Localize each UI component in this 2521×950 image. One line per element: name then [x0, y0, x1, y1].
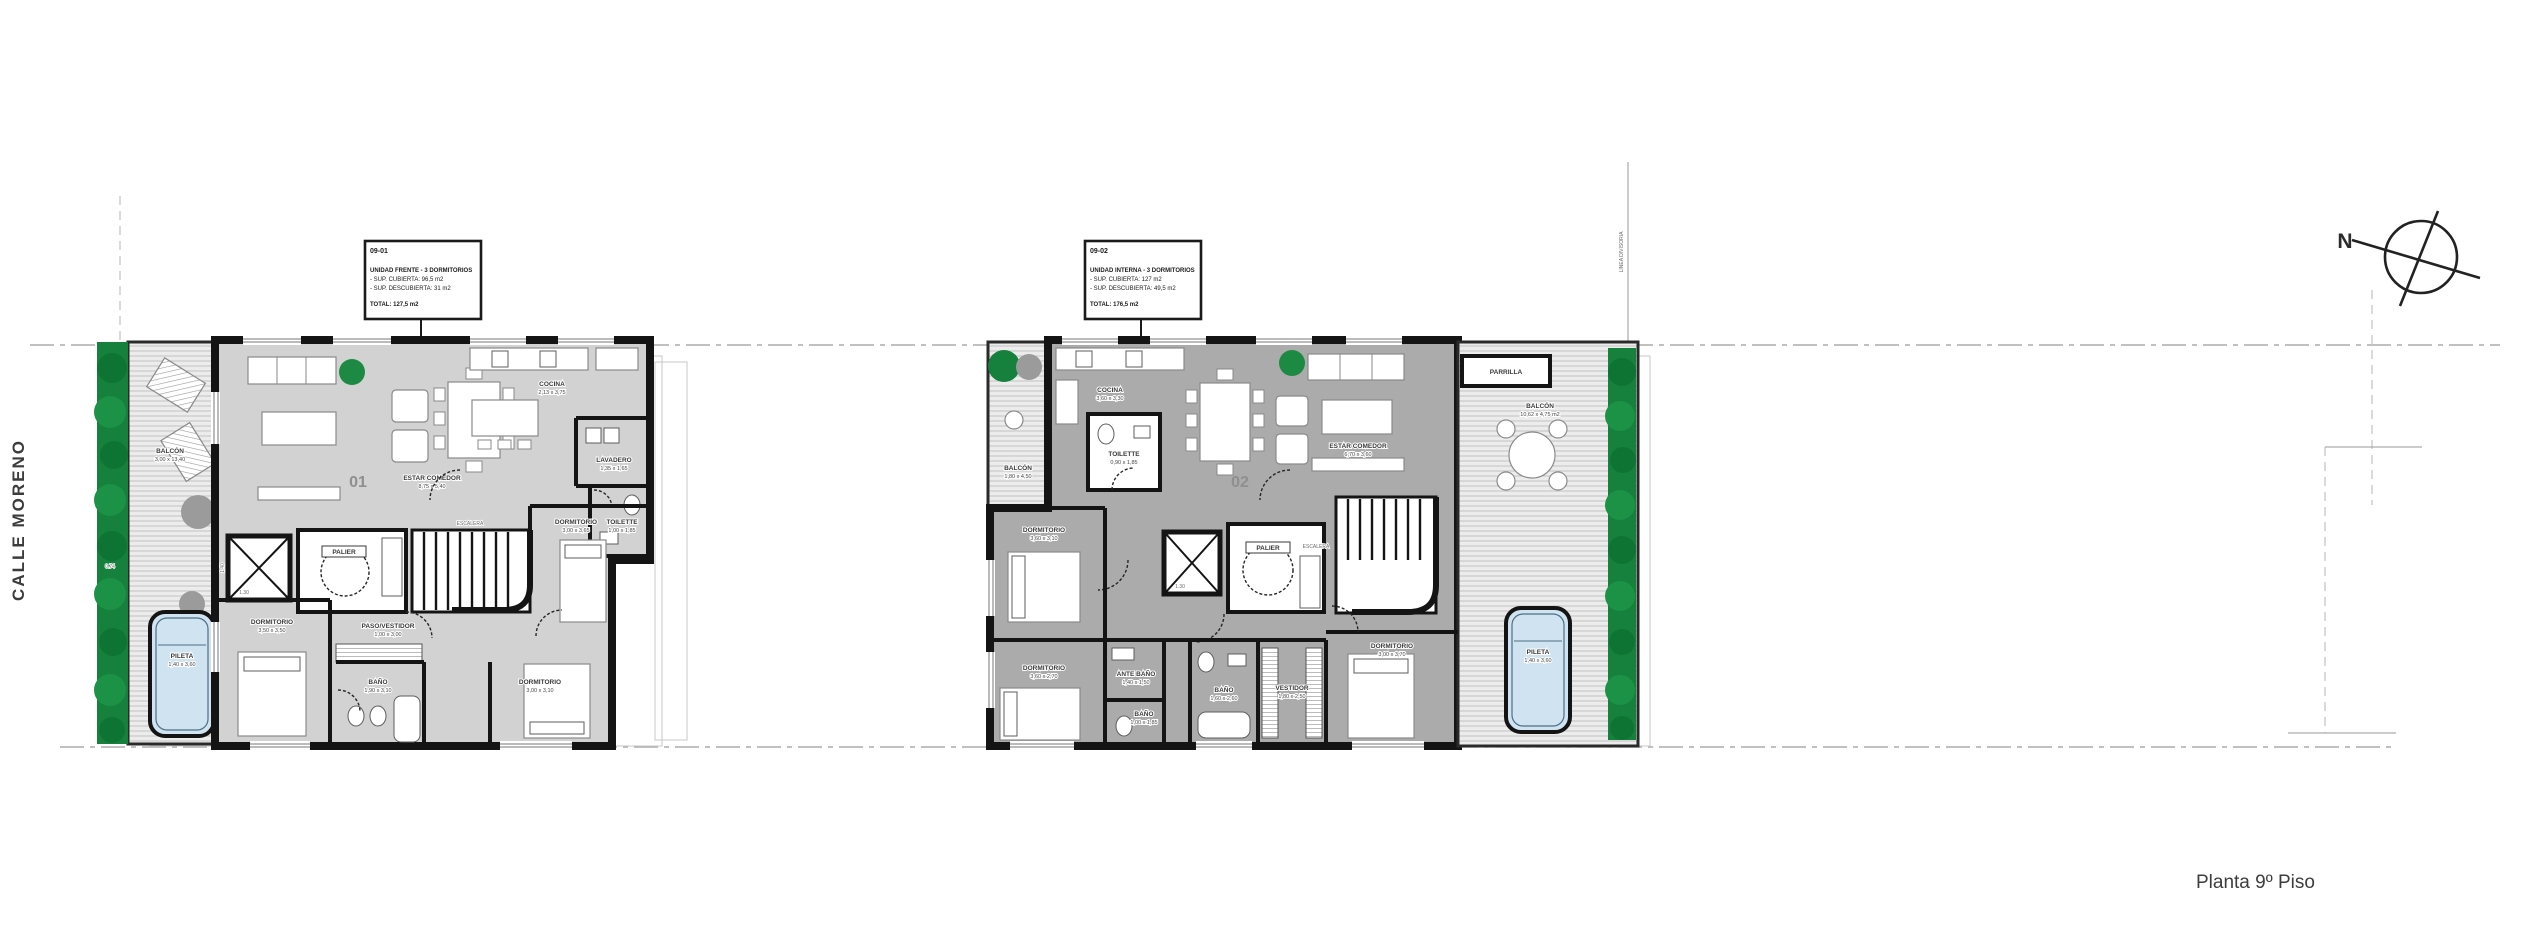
- unit-2-toilette-label: TOILETTE: [1108, 451, 1140, 458]
- chair: [1497, 472, 1515, 490]
- chair: [1497, 420, 1515, 438]
- vanity-icon: [1112, 648, 1134, 660]
- unit-1-cocina-dims: 2,13 x 3,75: [538, 390, 565, 396]
- unit-2-bano-dims: 1,60 x 2,60: [1210, 696, 1237, 702]
- toilet-icon: [1098, 424, 1114, 444]
- unit-1-estar-label: ESTAR COMEDOR: [403, 475, 461, 482]
- service-shaft: [1300, 556, 1320, 608]
- toilet-icon: [1198, 652, 1214, 672]
- unit-2-pileta-label: PILETA: [1527, 649, 1550, 656]
- cooktop-icon: [1126, 351, 1142, 367]
- kitchen-counter-side: [1056, 380, 1078, 424]
- unit-1-planter-strip: [94, 342, 128, 744]
- toilet-icon: [1116, 716, 1132, 736]
- fridge: [596, 348, 638, 370]
- unit-2-vestidor-dims: 1,80 x 2,50: [1278, 694, 1305, 700]
- unit-2-dorm2-dims: 3,60 x 2,70: [1030, 674, 1057, 680]
- unit-2-estar-label: ESTAR COMEDOR: [1329, 443, 1387, 450]
- bathtub-icon: [394, 696, 420, 742]
- armchair-2: [392, 430, 428, 462]
- unit-2-uncovered: - SUP. DESCUBIERTA: 49,5 m2: [1090, 286, 1176, 292]
- unit-2-balcon-l-label: BALCÓN: [1004, 463, 1032, 472]
- unit-1-lavadero-dims: 1,35 x 1,65: [600, 466, 627, 472]
- unit-2-balcon-l-dims: 1,80 x 4,50: [1004, 474, 1031, 480]
- north-compass: N: [2337, 211, 2480, 306]
- unit-2-dorm2-label: DORMITORIO: [1023, 665, 1065, 672]
- tree-icon: [988, 350, 1020, 382]
- bidet-icon: [370, 706, 386, 726]
- dryer-icon: [604, 428, 619, 443]
- kitchen-island: [472, 400, 538, 436]
- unit-2-balcon-r-label: BALCÓN: [1526, 401, 1554, 410]
- unit-2-bano-label: BAÑO: [1214, 685, 1233, 694]
- tv-sideboard: [1312, 458, 1404, 471]
- unit-1-paso-label: PASO/VESTIDOR: [362, 623, 415, 630]
- chair: [1549, 420, 1567, 438]
- unit-2-toilette-dims: 0,90 x 1,85: [1110, 460, 1137, 466]
- unit-1-pool: PILETA 1,40 x 3,60: [150, 612, 214, 736]
- unit-1-paso-dims: 1,00 x 3,00: [374, 632, 401, 638]
- unit-1-ghost-side: [655, 362, 687, 740]
- unit-02-plan: BALCÓN 1,80 x 4,50 COCINA 3,60 x 3,30: [986, 336, 1650, 750]
- unit-1-dorm1-label: DORMITORIO: [251, 619, 293, 626]
- unit-2-escalera-label: ESCALERA: [1303, 544, 1330, 550]
- unit-1-dorm2-label: DORMITORIO: [519, 679, 561, 686]
- unit-1-cocina-label: COCINA: [539, 381, 565, 388]
- pillow: [1354, 659, 1408, 673]
- island-stools: [478, 440, 531, 449]
- unit-1-code: 09-01: [370, 248, 388, 255]
- armchair-1: [392, 390, 428, 422]
- unit-1-dorm2-dims: 3,00 x 3,10: [526, 688, 553, 694]
- wardrobe: [1262, 648, 1278, 738]
- plant-icon: [1279, 350, 1305, 376]
- toilet-icon: [348, 706, 364, 726]
- sofa: [1308, 354, 1404, 380]
- chair: [1549, 472, 1567, 490]
- unit-2-total: TOTAL: 176,5 m2: [1090, 302, 1139, 308]
- unit-1-lavadero-label: LAVADERO: [596, 457, 632, 464]
- unit-1-escalera-label: ESCALERA: [457, 521, 484, 527]
- bathtub-icon: [1198, 712, 1250, 738]
- pillow: [244, 657, 300, 671]
- coffee-table: [1322, 400, 1392, 434]
- unit-1-balcon-dims: 3,00 x 13,40: [155, 457, 185, 463]
- pillow: [1004, 692, 1017, 736]
- coffee-table: [262, 412, 336, 445]
- stairs: ESCALERA: [412, 521, 530, 612]
- unit-1-pileta-dims: 1,40 x 3,60: [168, 662, 195, 668]
- unit-1-total: TOTAL: 127,5 m2: [370, 302, 419, 308]
- unit-2-antebano-dims: 1,40 x 1,50: [1122, 680, 1149, 686]
- compass-needle-icon: [2352, 240, 2480, 278]
- unit-1-left-dim: 0.74: [105, 564, 115, 570]
- plant-icon: [339, 359, 365, 385]
- sink-icon: [1076, 351, 1092, 367]
- unit-2-elev-depth: 1.30: [1175, 584, 1185, 590]
- round-table: [1509, 432, 1555, 478]
- unit-1-pileta-label: PILETA: [171, 653, 194, 660]
- unit-1-bano-label: BAÑO: [368, 677, 387, 686]
- washbasin-icon: [1134, 426, 1150, 438]
- unit-1-palier-label: PALIER: [332, 549, 356, 556]
- cooktop-icon: [540, 351, 556, 367]
- unit-2-cocina-label: COCINA: [1097, 387, 1123, 394]
- street-label: CALLE MORENO: [9, 439, 28, 601]
- unit-2-number: 02: [1231, 474, 1249, 491]
- unit-1-terrace-planter-pot-1: [181, 495, 215, 529]
- unit-2-parrilla-label: PARRILLA: [1490, 369, 1523, 376]
- unit-1-covered: - SUP. CUBIERTA: 96,5 m2: [370, 277, 444, 283]
- unit-1-number: 01: [349, 474, 367, 491]
- unit-2-covered: - SUP. CUBIERTA: 127 m2: [1090, 277, 1162, 283]
- sink-icon: [492, 351, 508, 367]
- pillow: [530, 722, 584, 734]
- unit-2-terrace-right: PARRILLA BALCÓN 10,62 x 4,75 m2 PILETA 1…: [1458, 342, 1638, 746]
- unit-1-dorm1-dims: 3,50 x 3,50: [258, 628, 285, 634]
- planter-pot: [1016, 354, 1042, 380]
- pillow: [565, 545, 601, 558]
- unit-2-palier-label: PALIER: [1256, 545, 1280, 552]
- side-table: [1005, 411, 1023, 429]
- armchair-2: [1276, 434, 1308, 464]
- unit-1-type: UNIDAD FRENTE - 3 DORMITORIOS: [370, 268, 472, 274]
- lot-divider-label: LINEA DIVISORIA: [1619, 231, 1625, 273]
- unit-2-bano-chico-dims: 1,00 x 1,85: [1130, 720, 1157, 726]
- dining-table: [1200, 383, 1250, 461]
- unit-1-bano-dims: 1,90 x 3,10: [364, 688, 391, 694]
- washer-icon: [586, 428, 601, 443]
- unit-2-dorm3-dims: 3,00 x 3,70: [1378, 652, 1405, 658]
- tv-sideboard: [258, 487, 340, 500]
- unit-2-estar-dims: 6,70 x 3,60: [1344, 452, 1371, 458]
- unit-2-pool: PILETA 1,40 x 3,60: [1506, 608, 1570, 732]
- unit-2-balcon-r-dims: 10,62 x 4,75 m2: [1520, 412, 1559, 418]
- wardrobe: [1306, 648, 1322, 738]
- plan-title: Planta 9º Piso: [2196, 872, 2315, 893]
- unit-2-toilette: TOILETTE 0,90 x 1,85: [1088, 414, 1160, 490]
- pillow: [1012, 556, 1025, 618]
- armchair-1: [1276, 396, 1308, 426]
- unit-1-dorm3-label: DORMITORIO: [555, 519, 597, 526]
- washbasin-icon: [1228, 654, 1246, 666]
- unit-1-balcon-label: BALCÓN: [156, 446, 184, 455]
- unit-2-vestidor-label: VESTIDOR: [1275, 685, 1309, 692]
- unit-2-antebano-label: ANTE BAÑO: [1117, 669, 1156, 678]
- sofa: [248, 357, 336, 384]
- unit-1-dorm3-dims: 3,00 x 3,65: [562, 528, 589, 534]
- unit-2-dorm1-label: DORMITORIO: [1023, 527, 1065, 534]
- unit-2-type: UNIDAD INTERNA - 3 DORMITORIOS: [1090, 268, 1195, 274]
- unit-2-planter-strip: [1605, 348, 1636, 740]
- unit-1-toilette-dims: 1,00 x 1,85: [608, 528, 635, 534]
- kitchen-counter: [470, 348, 588, 370]
- unit-1-elev-depth: 1.30: [239, 590, 249, 596]
- service-shaft: [382, 538, 402, 596]
- unit-2-dorm3-label: DORMITORIO: [1371, 643, 1413, 650]
- north-label: N: [2337, 230, 2352, 253]
- floor-plan-page: LINEA DIVISORIA CALLE MORENO N Planta 9º…: [0, 0, 2521, 950]
- unit-2-dorm1-dims: 3,60 x 3,10: [1030, 536, 1057, 542]
- unit-1-elev-width: 1.40: [220, 563, 226, 573]
- unit-2-cocina-dims: 3,60 x 3,30: [1096, 396, 1123, 402]
- kitchen-counter: [1056, 348, 1184, 370]
- wardrobe: [336, 644, 422, 662]
- unit-1-uncovered: - SUP. DESCUBIERTA: 31 m2: [370, 286, 451, 292]
- unit-2-pileta-dims: 1,40 x 3,60: [1524, 658, 1551, 664]
- unit-2-bano-chico-label: BAÑO: [1134, 709, 1153, 718]
- floor-plan-drawing: LINEA DIVISORIA CALLE MORENO N Planta 9º…: [0, 0, 2521, 950]
- unit-01-plan: BALCÓN 3,00 x 13,40 PILETA 1,40 x 3,60 0…: [94, 336, 687, 750]
- unit-2-balcony-left: BALCÓN 1,80 x 4,50: [988, 342, 1048, 508]
- unit-1-toilette-label: TOILETTE: [606, 519, 638, 526]
- unit-2-code: 09-02: [1090, 248, 1108, 255]
